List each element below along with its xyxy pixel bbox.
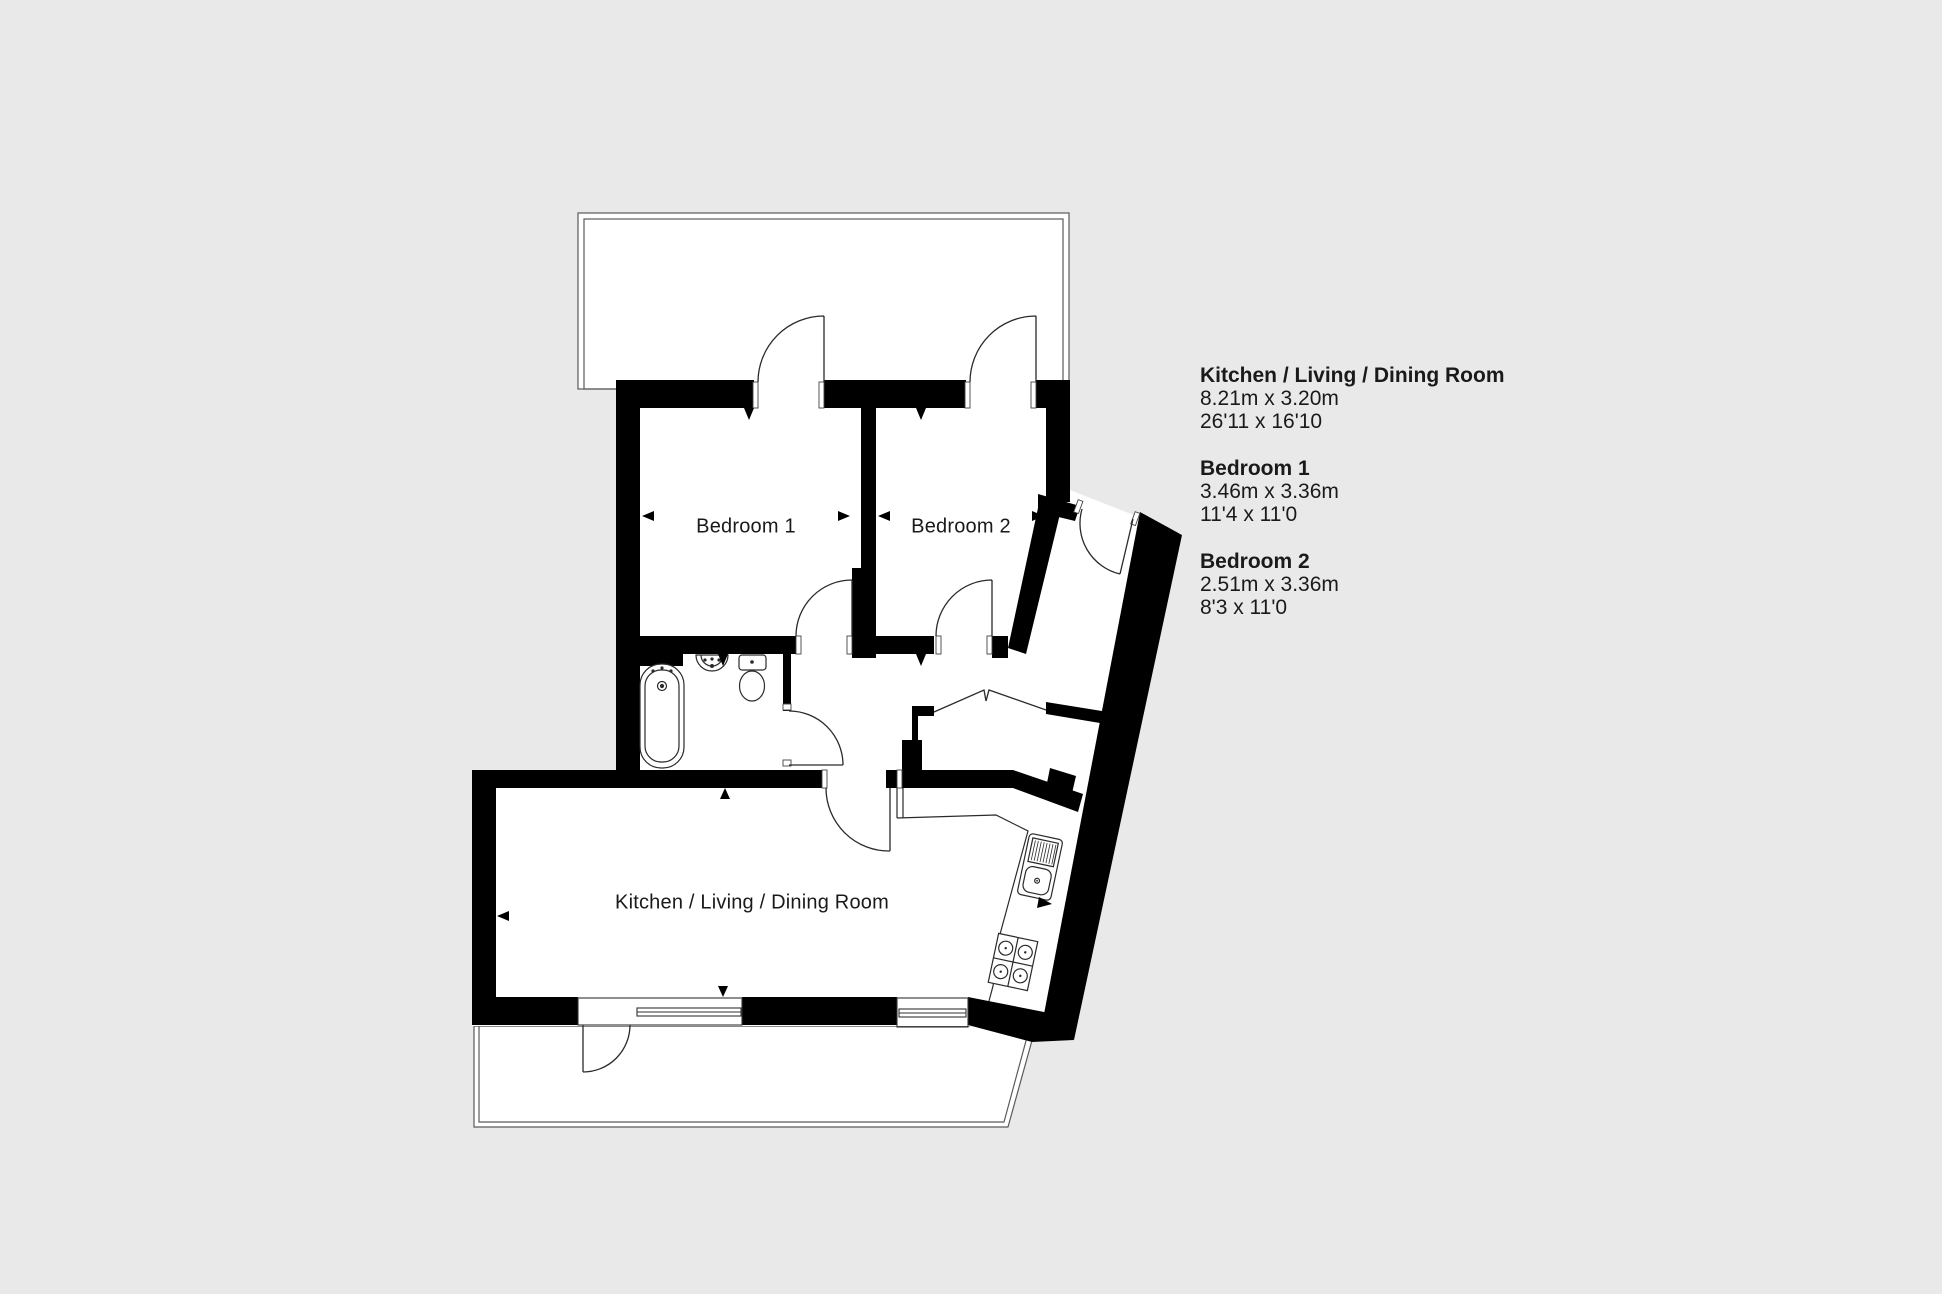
legend-metric-size: 8.21m x 3.20m: [1200, 387, 1620, 410]
room-label-bedroom-2: Bedroom 2: [911, 516, 1011, 539]
toilet: [739, 655, 766, 701]
balcony-outline: [474, 1026, 1036, 1127]
legend-imperial-size: 11'4 x 11'0: [1200, 503, 1620, 526]
legend-room-name: Bedroom 1: [1200, 457, 1620, 480]
legend-metric-size: 3.46m x 3.36m: [1200, 480, 1620, 503]
floorplan-drawing: [0, 0, 1942, 1294]
bathtub: [640, 664, 684, 768]
floorplan-page: Bedroom 1 Bedroom 2 Kitchen / Living / D…: [0, 0, 1942, 1294]
legend-room-name: Kitchen / Living / Dining Room: [1200, 364, 1620, 387]
legend-imperial-size: 8'3 x 11'0: [1200, 596, 1620, 619]
room-label-kitchen-living-dining: Kitchen / Living / Dining Room: [615, 892, 889, 915]
legend-block-bedroom-2: Bedroom 2 2.51m x 3.36m 8'3 x 11'0: [1200, 550, 1620, 619]
legend-room-name: Bedroom 2: [1200, 550, 1620, 573]
legend-metric-size: 2.51m x 3.36m: [1200, 573, 1620, 596]
legend-block-kitchen-living-dining: Kitchen / Living / Dining Room 8.21m x 3…: [1200, 364, 1620, 433]
legend-block-bedroom-1: Bedroom 1 3.46m x 3.36m 11'4 x 11'0: [1200, 457, 1620, 526]
room-label-bedroom-1: Bedroom 1: [696, 516, 796, 539]
legend-imperial-size: 26'11 x 16'10: [1200, 410, 1620, 433]
dimensions-legend: Kitchen / Living / Dining Room 8.21m x 3…: [1200, 364, 1620, 643]
